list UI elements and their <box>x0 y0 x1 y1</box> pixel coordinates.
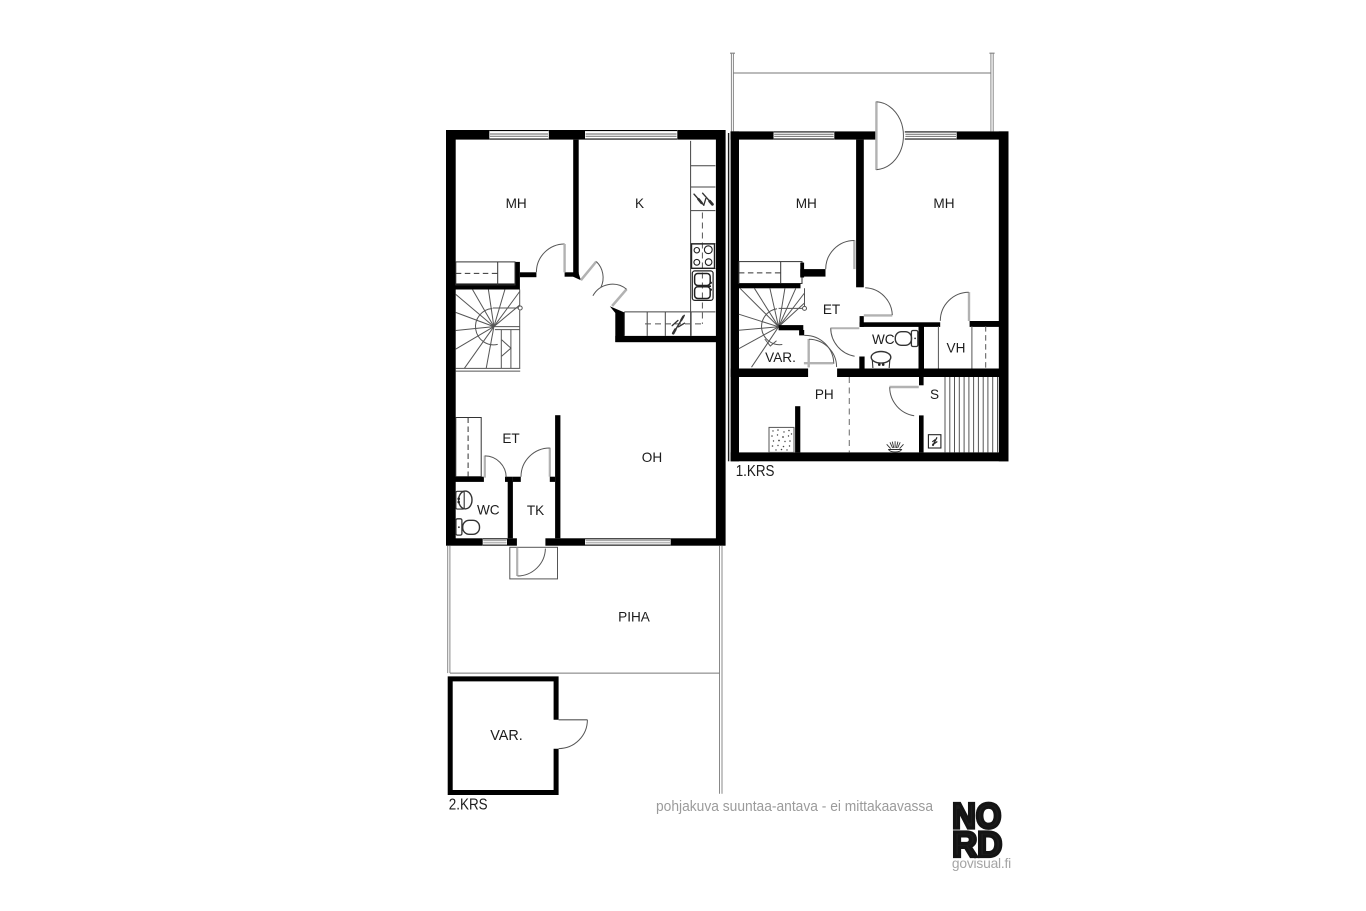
svg-text:S: S <box>930 387 939 402</box>
svg-text:VH: VH <box>947 340 966 355</box>
svg-text:pohjakuva suuntaa-antava - ei: pohjakuva suuntaa-antava - ei mittakaava… <box>656 799 934 815</box>
svg-text:govisual.fi: govisual.fi <box>952 856 1011 871</box>
svg-text:MH: MH <box>506 196 527 211</box>
svg-text:WC: WC <box>872 332 895 347</box>
svg-text:MH: MH <box>796 196 817 211</box>
svg-text:TK: TK <box>527 503 544 518</box>
svg-text:PH: PH <box>815 387 834 402</box>
svg-text:K: K <box>635 196 644 211</box>
svg-text:1.KRS: 1.KRS <box>736 463 775 480</box>
svg-text:PIHA: PIHA <box>618 610 651 625</box>
svg-text:ET: ET <box>502 431 519 446</box>
svg-text:MH: MH <box>933 196 954 211</box>
svg-text:VAR.: VAR. <box>490 728 523 744</box>
svg-text:2.KRS: 2.KRS <box>449 796 488 813</box>
svg-text:VAR.: VAR. <box>765 350 796 365</box>
svg-text:OH: OH <box>642 450 662 465</box>
svg-text:ET: ET <box>823 302 840 317</box>
svg-text:WC: WC <box>477 502 500 517</box>
